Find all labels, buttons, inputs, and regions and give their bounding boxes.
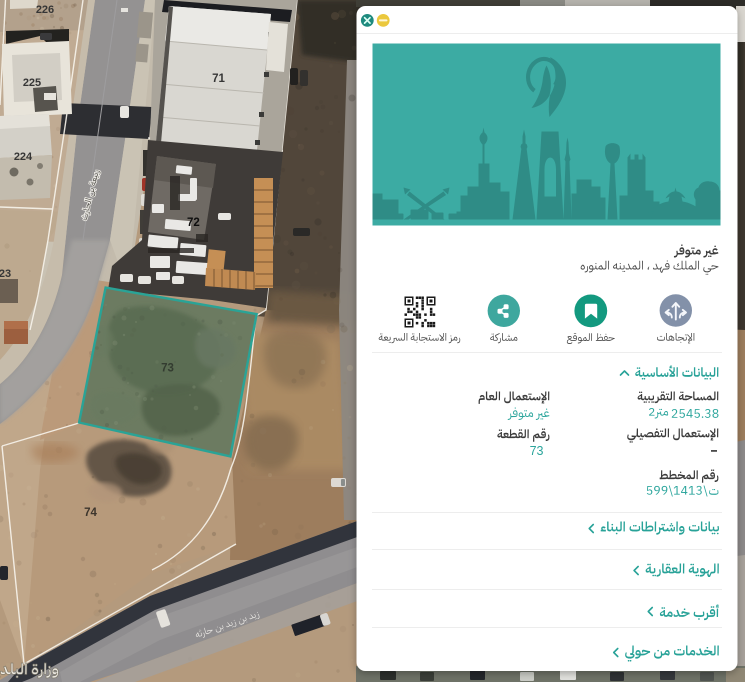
- svg-text:226: 226: [36, 4, 54, 16]
- svg-text:23: 23: [0, 268, 11, 280]
- svg-text:71: 71: [212, 73, 225, 85]
- svg-text:73: 73: [530, 444, 544, 458]
- svg-text:73: 73: [161, 363, 174, 375]
- svg-text:72: 72: [187, 217, 200, 229]
- svg-text:74: 74: [84, 507, 97, 519]
- svg-text:225: 225: [23, 77, 41, 89]
- svg-text:224: 224: [14, 151, 33, 163]
